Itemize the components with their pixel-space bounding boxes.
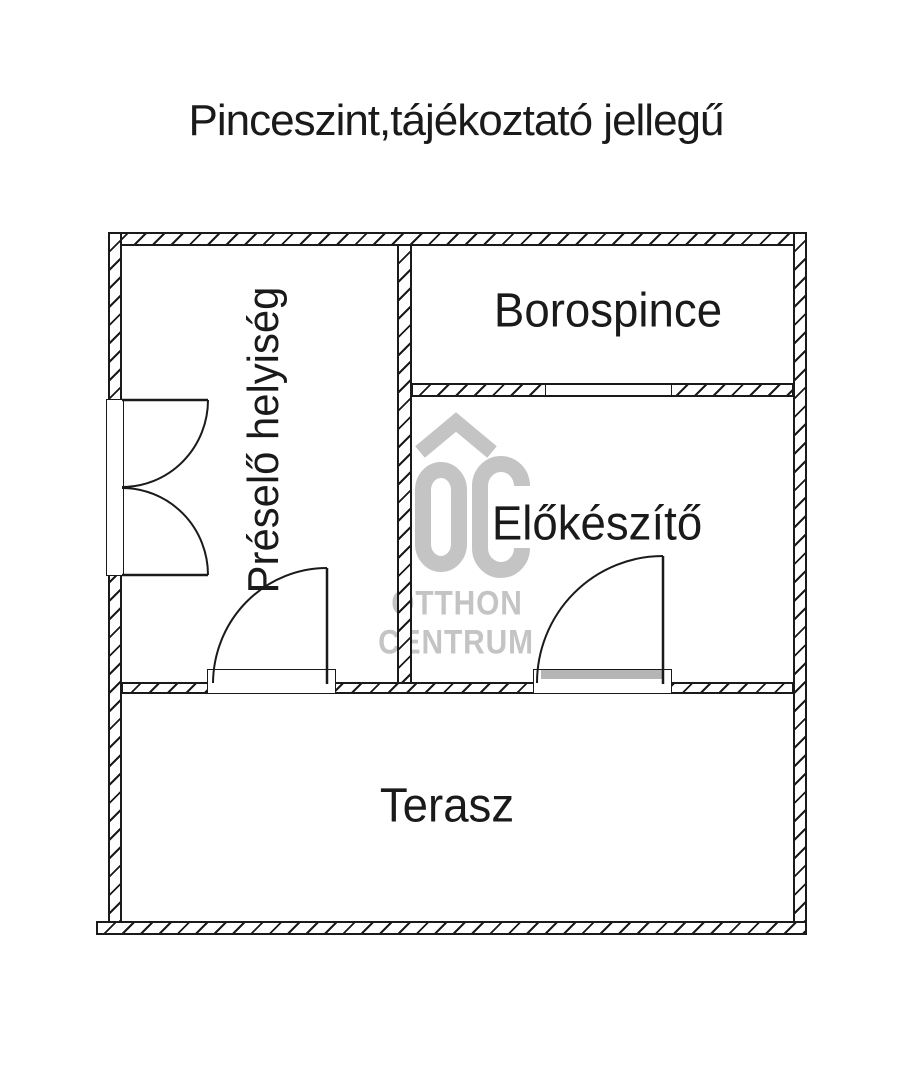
- wall-exterior-right: [793, 232, 807, 935]
- wall-interior-vertical: [397, 244, 412, 694]
- oc-logo-icon: [0, 0, 912, 1080]
- room-label-preselo-helyiseg: Préselő helyiség: [239, 287, 289, 594]
- opening-preselo-terasz-door: [207, 669, 336, 694]
- wall-exterior-bottom: [96, 921, 807, 935]
- door-sill: [541, 670, 664, 679]
- room-label-terasz: Terasz: [380, 779, 514, 834]
- wall-exterior-left: [108, 232, 122, 935]
- floorplan-page: Pinceszint,tájékoztató jellegű OTTHON CE…: [0, 0, 912, 1080]
- room-label-elokeszito: Előkészítő: [492, 497, 702, 552]
- wall-exterior-top: [108, 232, 807, 246]
- opening-borospince-passage: [545, 384, 672, 396]
- opening-double-door-left-wall: [106, 399, 124, 576]
- room-label-borospince: Borospince: [494, 284, 722, 339]
